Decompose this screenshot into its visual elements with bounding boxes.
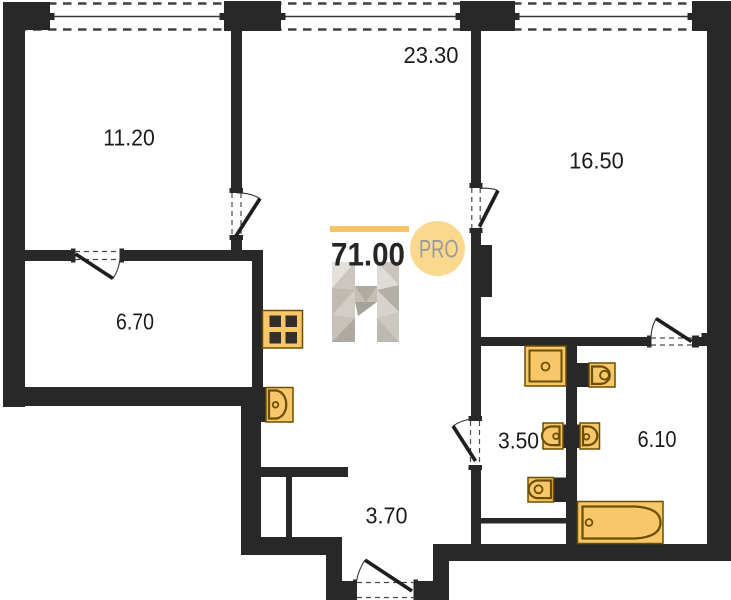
svg-text:3.50: 3.50	[498, 428, 539, 454]
svg-text:3.70: 3.70	[366, 503, 408, 529]
svg-text:11.20: 11.20	[103, 125, 155, 151]
svg-text:6.70: 6.70	[116, 309, 154, 335]
svg-text:71.00: 71.00	[331, 237, 405, 273]
svg-text:16.50: 16.50	[569, 148, 624, 174]
svg-text:PRO: PRO	[419, 236, 459, 264]
svg-text:23.30: 23.30	[404, 42, 459, 68]
svg-text:6.10: 6.10	[638, 426, 677, 452]
